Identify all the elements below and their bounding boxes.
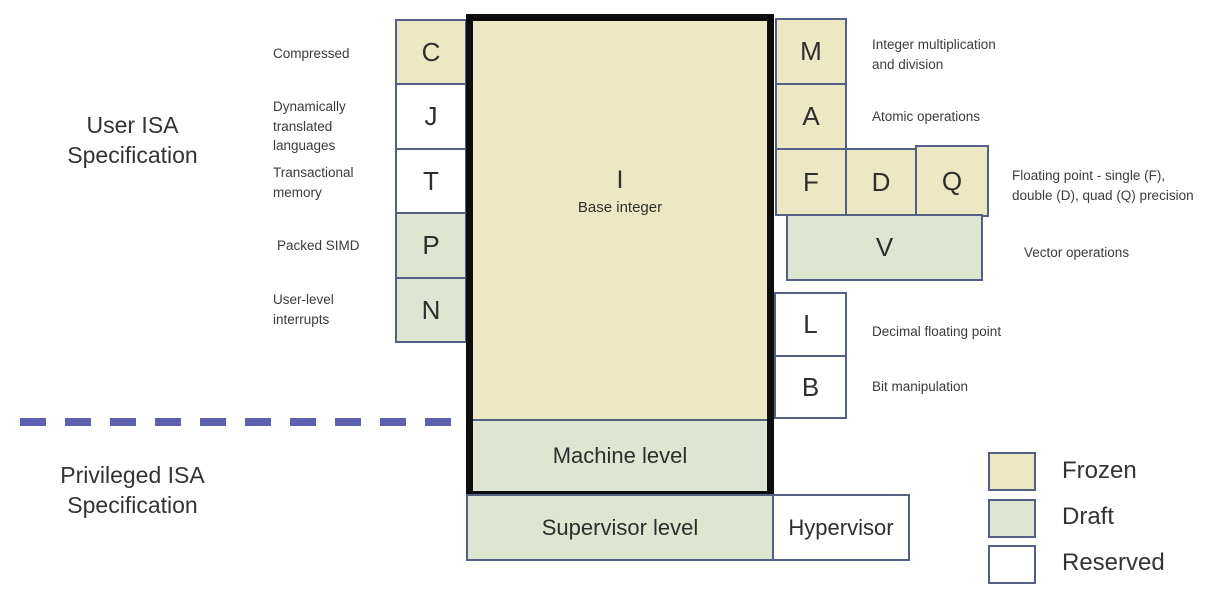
ext-box-f: F	[775, 148, 847, 216]
user-isa-title: User ISA Specification	[25, 110, 240, 171]
ext-box-b: B	[774, 355, 847, 419]
ext-box-j: J	[395, 83, 467, 150]
label-packed-simd: Packed SIMD	[277, 236, 360, 256]
legend-reserved-swatch	[988, 545, 1036, 584]
label-floating-point: Floating point - single (F), double (D),…	[1012, 166, 1194, 205]
ext-box-q: Q	[915, 145, 989, 217]
legend-frozen-swatch	[988, 452, 1036, 491]
label-bit-manipulation: Bit manipulation	[872, 377, 968, 397]
ext-box-l: L	[774, 292, 847, 357]
ext-box-v: V	[786, 214, 983, 281]
base-integer-letter: I	[473, 167, 767, 195]
ext-box-d: D	[845, 148, 917, 216]
label-integer-multiplication: Integer multiplication and division	[872, 35, 996, 74]
ext-box-n: N	[395, 277, 467, 343]
label-compressed: Compressed	[273, 44, 350, 64]
label-decimal-floating-point: Decimal floating point	[872, 322, 1001, 342]
legend-draft-swatch	[988, 499, 1036, 538]
ext-box-t: T	[395, 148, 467, 214]
legend-frozen-label: Frozen	[1062, 457, 1137, 485]
base-integer-box: I Base integer Machine level	[466, 14, 774, 498]
label-user-level-interrupts: User-level interrupts	[273, 290, 334, 329]
ext-box-m: M	[775, 18, 847, 85]
supervisor-level-box: Supervisor level	[466, 494, 774, 561]
ext-box-a: A	[775, 83, 847, 150]
label-transactional-memory: Transactional memory	[273, 163, 354, 202]
label-atomic-operations: Atomic operations	[872, 107, 980, 127]
base-integer-label: Base integer	[473, 199, 767, 216]
privileged-isa-title: Privileged ISA Specification	[25, 460, 240, 521]
ext-box-c: C	[395, 19, 467, 85]
hypervisor-box: Hypervisor	[772, 494, 910, 561]
riscv-isa-extensions-diagram: User ISA Specification Privileged ISA Sp…	[0, 0, 1218, 589]
label-dynamically-translated-languages: Dynamically translated languages	[273, 97, 346, 156]
label-vector-operations: Vector operations	[1024, 243, 1129, 263]
base-integer-text: I Base integer	[473, 167, 767, 216]
legend-reserved-label: Reserved	[1062, 549, 1165, 577]
user-privileged-divider	[20, 418, 463, 426]
legend-draft-label: Draft	[1062, 503, 1114, 531]
ext-box-p: P	[395, 212, 467, 279]
machine-level-box: Machine level	[473, 419, 767, 491]
